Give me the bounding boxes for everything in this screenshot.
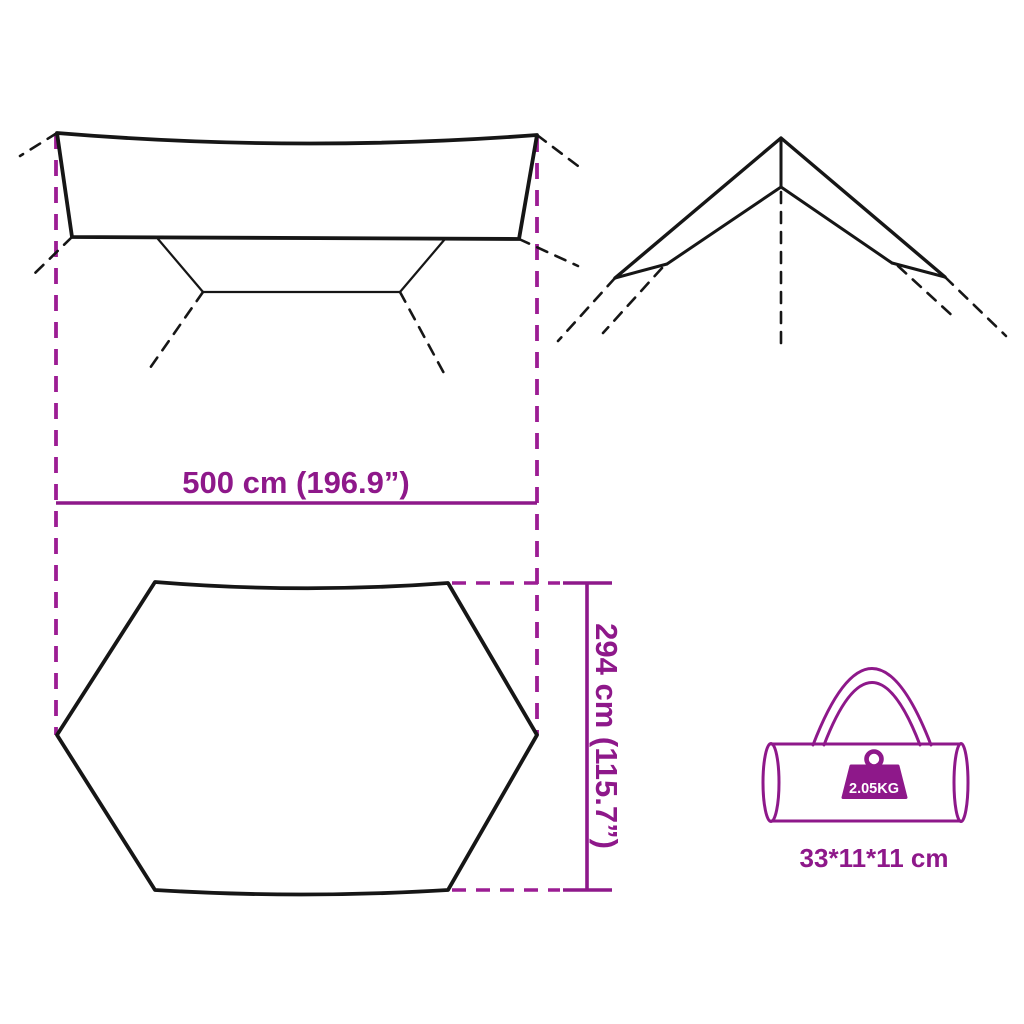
product-dimension-diagram: 500 cm (196.9”) 294 cm (115.7”) (0, 0, 1024, 1024)
side-inner-edges (667, 187, 892, 264)
bag-left-end (763, 744, 779, 822)
tarp-side-view (558, 138, 1006, 350)
carry-bag-illustration: 2.05KG 33*11*11 cm (763, 669, 968, 874)
side-guy-right-outer (945, 277, 1006, 336)
bag-right-end (954, 744, 968, 822)
tarp-flat-outline (57, 582, 537, 895)
width-extension-guides (56, 133, 537, 735)
side-guy-left-inner (603, 268, 662, 333)
guy-line-bottom-right (519, 239, 578, 266)
guy-line-top-left (20, 133, 57, 156)
guy-line-panel-left (150, 292, 203, 368)
weight-label: 2.05KG (849, 781, 899, 797)
weight-icon: 2.05KG (843, 752, 906, 798)
tarp-flat-view (57, 582, 537, 895)
guy-line-top-right (537, 135, 582, 169)
tarp-front-guy-lines (20, 133, 582, 377)
guy-line-bottom-left (32, 237, 72, 276)
height-dimension-label: 294 cm (115.7”) (589, 623, 624, 849)
width-dimension: 500 cm (196.9”) (56, 465, 537, 503)
weight-handle-loop (867, 752, 882, 767)
bag-handle-outer (813, 669, 931, 746)
side-guy-left-outer (558, 278, 615, 341)
tarp-front-under-panel (158, 239, 445, 292)
width-dimension-label: 500 cm (196.9”) (182, 465, 409, 500)
tarp-dimension-drawing: 500 cm (196.9”) 294 cm (115.7”) (0, 0, 1024, 1024)
side-guy-right-inner (898, 266, 957, 320)
guy-line-panel-right (400, 292, 446, 377)
tarp-front-view (20, 133, 582, 377)
tarp-front-outline (57, 133, 537, 239)
bag-size-label: 33*11*11 cm (800, 843, 949, 873)
